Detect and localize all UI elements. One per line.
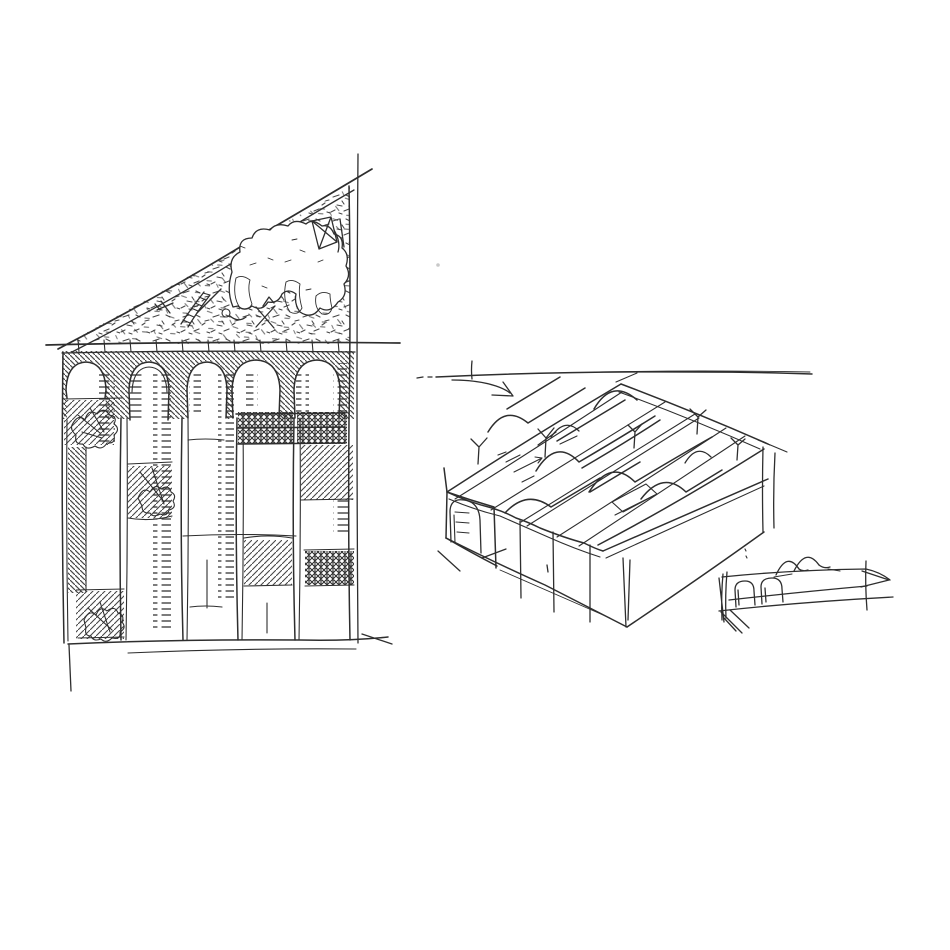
faint-smudge — [436, 263, 440, 267]
scribble-panel-3 — [128, 462, 175, 520]
crosshatch-band — [236, 412, 347, 444]
diag-panel-5 — [301, 445, 353, 500]
sketch-page — [0, 0, 950, 950]
diag-strip-panel — [68, 447, 86, 593]
diag-panel-4 — [244, 540, 292, 585]
scribble-panel-1 — [64, 398, 122, 448]
scribble-panel-2 — [76, 589, 124, 641]
sketch-canvas — [0, 0, 950, 950]
crosshatch-panel-low — [304, 549, 354, 586]
